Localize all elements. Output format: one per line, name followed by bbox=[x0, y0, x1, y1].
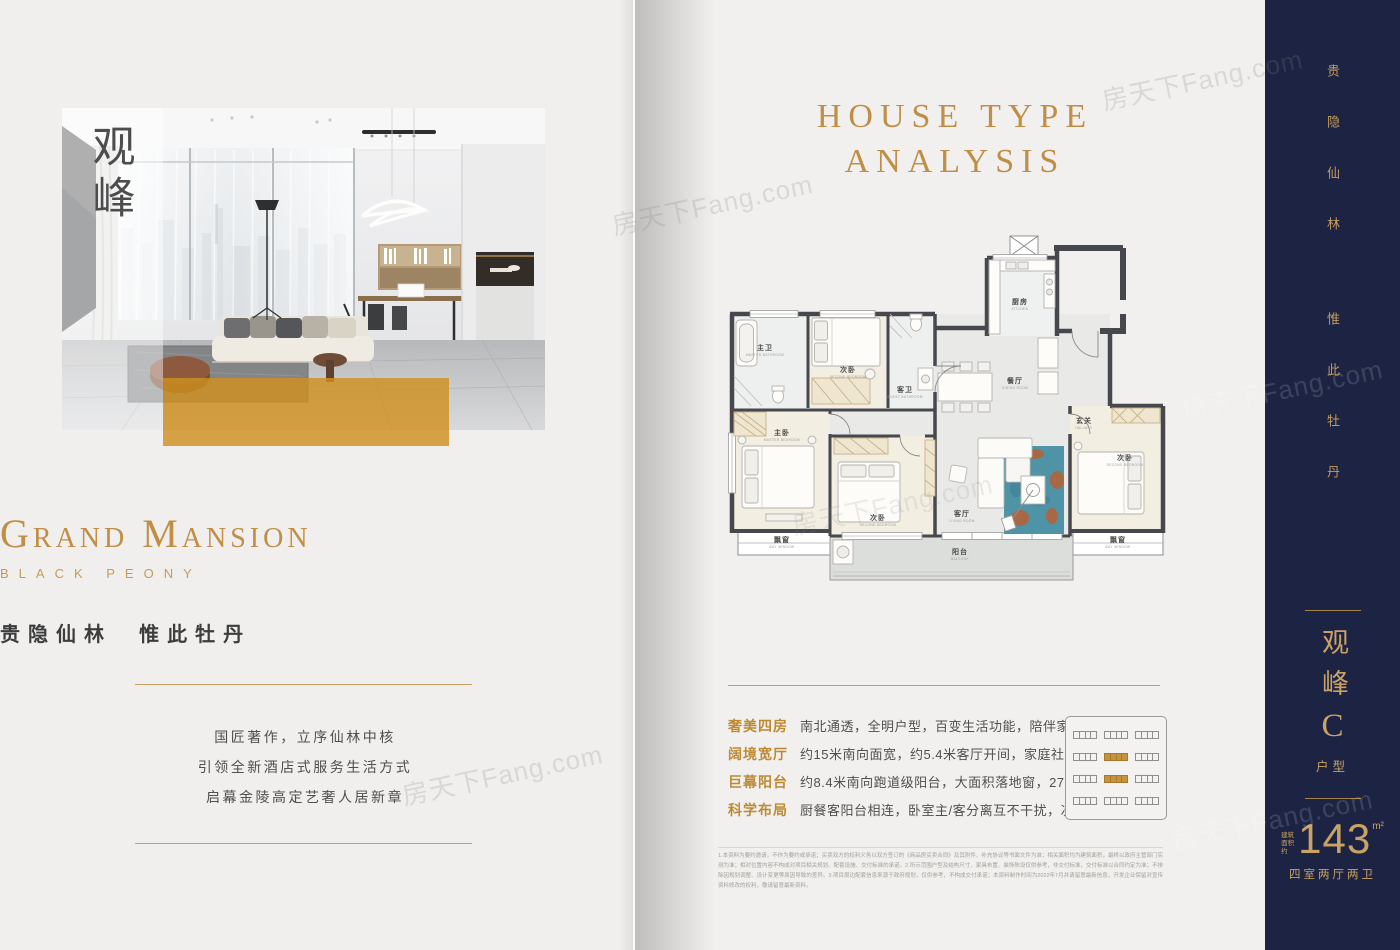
feature-text: 约8.4米南向跑道级阳台，大面积落地窗，270°环幕视野 bbox=[800, 772, 1070, 791]
area-value: 143 bbox=[1298, 818, 1371, 860]
house-type-letter: C bbox=[1265, 708, 1400, 745]
room-label-en: DINING ROOM bbox=[1002, 386, 1028, 390]
room-label-en: BAY WINDOW bbox=[770, 545, 795, 549]
room-label-en: GUEST BATHROOM bbox=[887, 395, 923, 399]
brand-title: Grand Mansion bbox=[0, 510, 633, 557]
room-label-cn: 次卧 bbox=[870, 513, 886, 522]
room-label-en: MASTER BEDROOM bbox=[764, 438, 800, 442]
brand-tagline: 贵隐仙林 惟此牡丹 bbox=[0, 618, 633, 647]
room-label-en: SECOND BEDROOM bbox=[830, 375, 867, 379]
brand-subtitle: BLACK PEONY bbox=[0, 566, 633, 581]
room-label-cn: 餐厅 bbox=[1006, 376, 1023, 385]
page-title-line1: HOUSE TYPE bbox=[720, 98, 1190, 136]
feature-text: 约15米南向面宽，约5.4米客厅开间，家庭社交生活主场 bbox=[800, 744, 1070, 763]
divider-top bbox=[135, 684, 472, 685]
siteplan-building bbox=[1073, 775, 1097, 783]
sidebar: 贵隐仙林 惟此牡丹 bbox=[1265, 0, 1400, 950]
features-divider bbox=[728, 685, 1160, 686]
house-type-word: 户型 bbox=[1265, 756, 1400, 775]
room-label-cn: 主卫 bbox=[757, 343, 773, 352]
siteplan-building bbox=[1104, 731, 1128, 739]
siteplan-building bbox=[1135, 775, 1159, 783]
intro-line: 启幕金陵高定艺奢人居新章 bbox=[55, 787, 555, 807]
siteplan-building-highlighted bbox=[1104, 753, 1128, 761]
room-label-cn: 次卧 bbox=[1117, 453, 1133, 462]
siteplan-grid bbox=[1065, 716, 1167, 820]
room-label-en: SECOND BEDROOM bbox=[1107, 463, 1144, 467]
siteplan-building bbox=[1135, 797, 1159, 805]
siteplan-building-highlighted bbox=[1104, 775, 1128, 783]
room-label-cn: 玄关 bbox=[1076, 416, 1092, 425]
area-figure: 建筑面积约 143 m² bbox=[1265, 818, 1400, 860]
feature-text: 厨餐客阳台相连，卧室主/客分离互不干扰，次卫干湿分离 bbox=[800, 800, 1070, 819]
sidebar-motto-bottom: 惟此牡丹 bbox=[1265, 312, 1400, 516]
feature-label: 巨幕阳台 bbox=[728, 772, 798, 792]
book-spine bbox=[633, 0, 635, 950]
cabinet bbox=[462, 144, 545, 370]
photo-overlay-title: 观峰 bbox=[88, 124, 131, 226]
room-label-en: BAY WINDOW bbox=[1106, 545, 1131, 549]
siteplan-building bbox=[1104, 797, 1128, 805]
divider-bottom bbox=[135, 843, 472, 844]
room-label-cn: 客卫 bbox=[896, 385, 913, 394]
floorplan: 主卫 MASTER BATHROOM 次卧 SECOND BEDROOM 客卫 … bbox=[720, 218, 1190, 598]
room-label-cn: 厨房 bbox=[1012, 297, 1028, 306]
siteplan-building bbox=[1073, 753, 1097, 761]
layout-label: 四室两厅两卫 bbox=[1265, 866, 1400, 882]
room-label-cn: 飘窗 bbox=[774, 535, 790, 544]
desk-chair bbox=[368, 304, 384, 330]
room-label-en: MASTER BATHROOM bbox=[746, 353, 784, 357]
sidebar-rule-top bbox=[1305, 610, 1361, 611]
disclaimer: 1.本资料为要约邀请，不作为要约或承诺；买卖双方的权利义务以双方签订的《商品房买… bbox=[718, 852, 1163, 892]
room-label-cn: 次卧 bbox=[840, 365, 856, 374]
intro-line: 引领全新酒店式服务生活方式 bbox=[55, 757, 555, 777]
sidebar-motto-top: 贵隐仙林 bbox=[1265, 64, 1400, 268]
disclaimer-divider bbox=[718, 847, 1163, 848]
siteplan-building bbox=[1135, 753, 1159, 761]
room-label-en: HALLWAY bbox=[1075, 426, 1093, 430]
track-light bbox=[362, 130, 436, 134]
room-label-cn: 阳台 bbox=[952, 547, 968, 556]
room-label-cn: 客厅 bbox=[953, 509, 970, 518]
room-label-cn: 主卧 bbox=[774, 428, 790, 437]
siteplan-building bbox=[1135, 731, 1159, 739]
sidebar-rule-bottom bbox=[1305, 798, 1361, 799]
room-label-en: LIVING ROOM bbox=[949, 519, 975, 523]
intro-line: 国匠著作，立序仙林中核 bbox=[55, 727, 555, 747]
room-label-en: KITCHEN bbox=[1012, 307, 1029, 311]
laptop bbox=[398, 284, 424, 297]
siteplan-building bbox=[1073, 731, 1097, 739]
feature-label: 阔境宽厅 bbox=[728, 744, 798, 764]
room-label-en: SECOND BEDROOM bbox=[860, 523, 897, 527]
feature-label: 奢美四房 bbox=[728, 716, 798, 736]
room-label-en: BALCONY bbox=[951, 557, 970, 561]
feature-label: 科学布局 bbox=[728, 800, 798, 820]
bookshelf bbox=[378, 244, 462, 290]
feature-text: 南北通透，全明户型，百变生活功能，陪伴家庭全周期 bbox=[800, 716, 1070, 735]
page-title-line2: ANALYSIS bbox=[720, 143, 1190, 181]
siteplan-building bbox=[1073, 797, 1097, 805]
house-type-name: 观峰 bbox=[1265, 628, 1400, 710]
brochure-page: { "colors": { "gold_accent": "#c08e44", … bbox=[0, 0, 1400, 950]
area-unit: m² bbox=[1372, 821, 1384, 832]
sofa bbox=[212, 316, 374, 362]
left-page: 观峰 Grand Mansion BLACK PEONY 贵隐仙林 惟此牡丹 国… bbox=[0, 0, 633, 950]
area-prefix: 建筑面积约 bbox=[1281, 832, 1296, 855]
room-label-cn: 飘窗 bbox=[1110, 535, 1126, 544]
photo-gold-block bbox=[163, 378, 449, 446]
